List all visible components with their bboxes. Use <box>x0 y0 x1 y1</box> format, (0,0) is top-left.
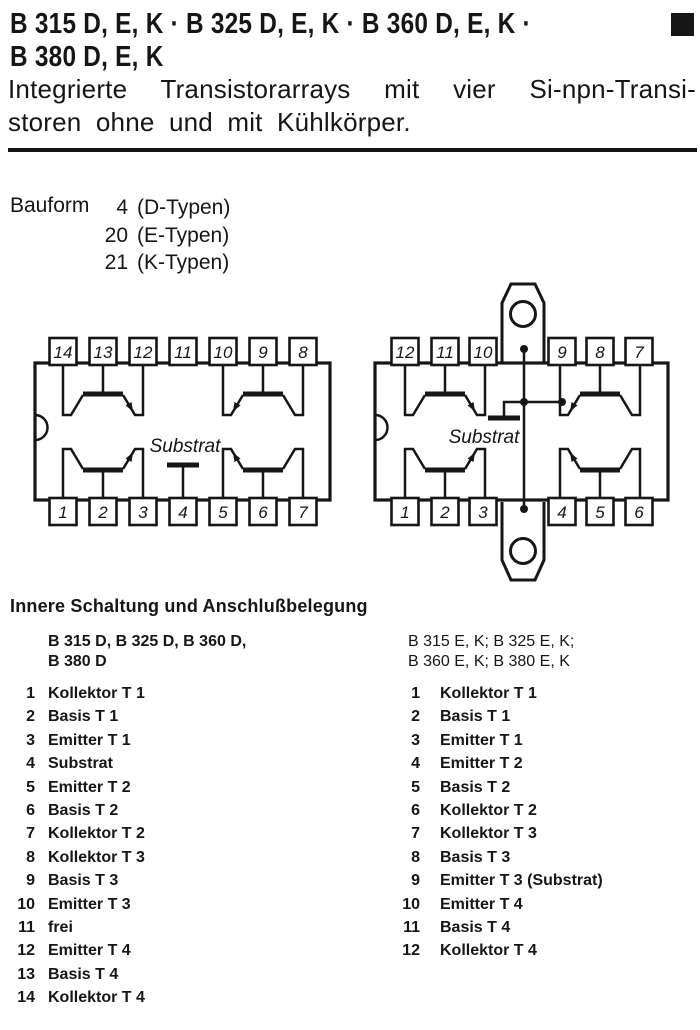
pin-box: 9 <box>250 338 277 365</box>
column-header-line: B 315 D, B 325 D, B 360 D, <box>48 632 246 652</box>
pin-row: 13Basis T 4 <box>9 963 145 986</box>
pin-number: 1 <box>400 503 409 522</box>
pin-number: 3 <box>138 503 148 522</box>
dip12-heatsink-package-diagram: Substrat 12 11 10 9 8 7 1 2 3 4 5 6 <box>375 284 668 580</box>
column-header-line: B 360 E, K; B 380 E, K <box>408 652 574 672</box>
pin-row: 12Kollektor T 4 <box>392 939 603 962</box>
pin-number: 13 <box>94 343 113 362</box>
pin-row: 4Substrat <box>9 752 145 775</box>
pin-list-ek-types: 1Kollektor T 1 2Basis T 1 3Emitter T 1 4… <box>392 682 603 963</box>
pin-number: 9 <box>9 869 35 892</box>
pin-row: 7Kollektor T 3 <box>392 822 603 845</box>
pin-number: 12 <box>9 939 35 962</box>
pin-number: 4 <box>392 752 420 775</box>
pin-box: 12 <box>130 338 157 365</box>
pin-number: 3 <box>392 729 420 752</box>
pin-number: 4 <box>9 752 35 775</box>
page-title-line1: B 315 D, E, K · B 325 D, E, K · B 360 D,… <box>10 8 531 41</box>
pin-box: 6 <box>250 498 277 525</box>
pin-number: 6 <box>634 503 644 522</box>
pin-number: 6 <box>258 503 268 522</box>
pin-row: 2Basis T 1 <box>9 705 145 728</box>
pin-number: 10 <box>474 343 493 362</box>
pin-label: Basis T 2 <box>440 776 510 799</box>
pin-label: Emitter T 3 (Substrat) <box>440 869 603 892</box>
pin-number: 4 <box>557 503 566 522</box>
pin-label: Basis T 1 <box>440 705 510 728</box>
pin-box: 6 <box>626 498 653 525</box>
pin-label: Kollektor T 1 <box>440 682 537 705</box>
pin-row: 3Emitter T 1 <box>9 729 145 752</box>
pin-label: Emitter T 1 <box>48 729 131 752</box>
pin-number: 7 <box>634 343 644 362</box>
corner-square-mark-icon <box>671 13 694 36</box>
pin-label: Kollektor T 1 <box>48 682 145 705</box>
pin-list-d-types: 1Kollektor T 1 2Basis T 1 3Emitter T 1 4… <box>9 682 145 1010</box>
pin-box: 11 <box>432 338 459 365</box>
pin-label: Basis T 1 <box>48 705 118 728</box>
pin-box: 4 <box>549 498 576 525</box>
pin-label: Substrat <box>48 752 113 775</box>
pinout-column-header-ek-types: B 315 E, K; B 325 E, K; B 360 E, K; B 38… <box>408 632 574 672</box>
pin-box: 10 <box>210 338 237 365</box>
pin-label: Kollektor T 2 <box>440 799 537 822</box>
pin-box: 7 <box>290 498 317 525</box>
pin-number: 13 <box>9 963 35 986</box>
pin-row: 5Basis T 2 <box>392 776 603 799</box>
pin-row: 5Emitter T 2 <box>9 776 145 799</box>
pin-box: 12 <box>392 338 419 365</box>
pin-label: Emitter T 1 <box>440 729 523 752</box>
pin-number: 8 <box>392 846 420 869</box>
pin-number: 14 <box>9 986 35 1009</box>
pin-number: 1 <box>58 503 67 522</box>
pin-number: 10 <box>9 893 35 916</box>
pin-box: 3 <box>130 498 157 525</box>
column-header-line: B 315 E, K; B 325 E, K; <box>408 632 574 652</box>
pin-number: 5 <box>392 776 420 799</box>
pin-number: 11 <box>392 916 420 939</box>
pin-row: 9Emitter T 3 (Substrat) <box>392 869 603 892</box>
bauform-label: Bauform <box>10 194 89 218</box>
pin-label: Emitter T 2 <box>48 776 131 799</box>
pin-number: 11 <box>436 343 454 362</box>
pin-number: 8 <box>9 846 35 869</box>
pin-number: 7 <box>298 503 308 522</box>
pin-number: 12 <box>134 343 153 362</box>
bauform-number: 4 <box>94 194 128 222</box>
pin-label: Kollektor T 2 <box>48 822 145 845</box>
pin-number: 6 <box>9 799 35 822</box>
column-header-line: B 380 D <box>48 652 246 672</box>
substrate-label: Substrat <box>150 436 221 457</box>
pin-box: 9 <box>549 338 576 365</box>
substrate-label: Substrat <box>449 427 520 448</box>
pin-box: 4 <box>170 498 197 525</box>
pin-box: 11 <box>170 338 197 365</box>
pin-number: 5 <box>218 503 228 522</box>
subtitle-line1: Integrierte Transistorarrays mit vier Si… <box>8 74 696 105</box>
pin-number: 5 <box>595 503 605 522</box>
pin-row: 12Emitter T 4 <box>9 939 145 962</box>
pin-box: 14 <box>50 338 77 365</box>
pin-number: 9 <box>392 869 420 892</box>
pin-row: 7Kollektor T 2 <box>9 822 145 845</box>
bauform-type: (E-Typen) <box>137 222 229 250</box>
pin-number: 1 <box>9 682 35 705</box>
pin-row: 6Kollektor T 2 <box>392 799 603 822</box>
pin-label: Basis T 4 <box>440 916 510 939</box>
pin-number: 2 <box>392 705 420 728</box>
dip14-package-diagram: Substrat 14 13 12 11 10 9 8 1 2 3 4 5 6 … <box>35 338 330 525</box>
pin-number: 2 <box>9 705 35 728</box>
page-title-line2: B 380 D, E, K <box>10 41 164 74</box>
pin-box: 8 <box>290 338 317 365</box>
pin-number: 11 <box>9 916 35 939</box>
pin-number: 6 <box>392 799 420 822</box>
pin-label: Basis T 3 <box>440 846 510 869</box>
pin-label: Kollektor T 3 <box>48 846 145 869</box>
bauform-number: 20 <box>94 222 128 250</box>
pin-row: 10Emitter T 3 <box>9 893 145 916</box>
pin-row: 1Kollektor T 1 <box>392 682 603 705</box>
pin-label: frei <box>48 916 73 939</box>
pin-row: 11frei <box>9 916 145 939</box>
pin-number: 3 <box>478 503 488 522</box>
horizontal-rule <box>8 148 697 152</box>
bauform-row: 4 (D-Typen) <box>94 194 230 222</box>
pin-number: 7 <box>392 822 420 845</box>
datasheet-page: B 315 D, E, K · B 325 D, E, K · B 360 D,… <box>0 0 700 1030</box>
pin-label: Basis T 4 <box>48 963 118 986</box>
pin-label: Emitter T 3 <box>48 893 131 916</box>
pin-label: Basis T 3 <box>48 869 118 892</box>
pin-row: 8Kollektor T 3 <box>9 846 145 869</box>
pin-label: Emitter T 4 <box>48 939 131 962</box>
pin-number: 1 <box>392 682 420 705</box>
pin-row: 4Emitter T 2 <box>392 752 603 775</box>
pin-number: 4 <box>178 503 187 522</box>
pin-row: 10Emitter T 4 <box>392 893 603 916</box>
pin-row: 3Emitter T 1 <box>392 729 603 752</box>
pin-number: 8 <box>298 343 308 362</box>
pin-number: 9 <box>258 343 268 362</box>
pin-number: 2 <box>439 503 450 522</box>
pinout-diagrams: Substrat 14 13 12 11 10 9 8 1 2 3 4 5 6 … <box>0 265 700 605</box>
pin-box: 3 <box>470 498 497 525</box>
pin-row: 14Kollektor T 4 <box>9 986 145 1009</box>
pin-number: 12 <box>396 343 415 362</box>
pin-number: 11 <box>174 343 192 362</box>
bauform-row: 20 (E-Typen) <box>94 222 230 250</box>
pinout-section-heading: Innere Schaltung und Anschlußbelegung <box>10 596 368 617</box>
pin-row: 9Basis T 3 <box>9 869 145 892</box>
pin-label: Emitter T 4 <box>440 893 523 916</box>
pin-number: 3 <box>9 729 35 752</box>
pin-row: 8Basis T 3 <box>392 846 603 869</box>
pin-row: 2Basis T 1 <box>392 705 603 728</box>
pin-number: 9 <box>557 343 567 362</box>
pin-label: Basis T 2 <box>48 799 118 822</box>
bauform-type: (D-Typen) <box>137 194 230 222</box>
pin-box: 7 <box>626 338 653 365</box>
pin-number: 10 <box>214 343 233 362</box>
pin-box: 8 <box>587 338 614 365</box>
pin-label: Kollektor T 4 <box>48 986 145 1009</box>
pin-box: 5 <box>587 498 614 525</box>
pinout-column-header-d-types: B 315 D, B 325 D, B 360 D, B 380 D <box>48 632 246 672</box>
pin-box: 2 <box>432 498 459 525</box>
pin-number: 12 <box>392 939 420 962</box>
pin-label: Kollektor T 4 <box>440 939 537 962</box>
bottom-mounting-lug <box>502 502 544 580</box>
subtitle-line2: storen ohne und mit Kühlkörper. <box>8 107 696 138</box>
pin-box: 10 <box>470 338 497 365</box>
pin-box: 1 <box>50 498 77 525</box>
pin-box: 5 <box>210 498 237 525</box>
pin-label: Kollektor T 3 <box>440 822 537 845</box>
pin-row: 11Basis T 4 <box>392 916 603 939</box>
pin-row: 6Basis T 2 <box>9 799 145 822</box>
pin-number: 10 <box>392 893 420 916</box>
pin-number: 7 <box>9 822 35 845</box>
pin-box: 2 <box>90 498 117 525</box>
pin-row: 1Kollektor T 1 <box>9 682 145 705</box>
pin-number: 8 <box>595 343 605 362</box>
pin-number: 14 <box>54 343 73 362</box>
pin-box: 1 <box>392 498 419 525</box>
pin-box: 13 <box>90 338 117 365</box>
pin-label: Emitter T 2 <box>440 752 523 775</box>
pin-number: 2 <box>97 503 108 522</box>
pin-number: 5 <box>9 776 35 799</box>
dip12-body <box>375 363 668 500</box>
